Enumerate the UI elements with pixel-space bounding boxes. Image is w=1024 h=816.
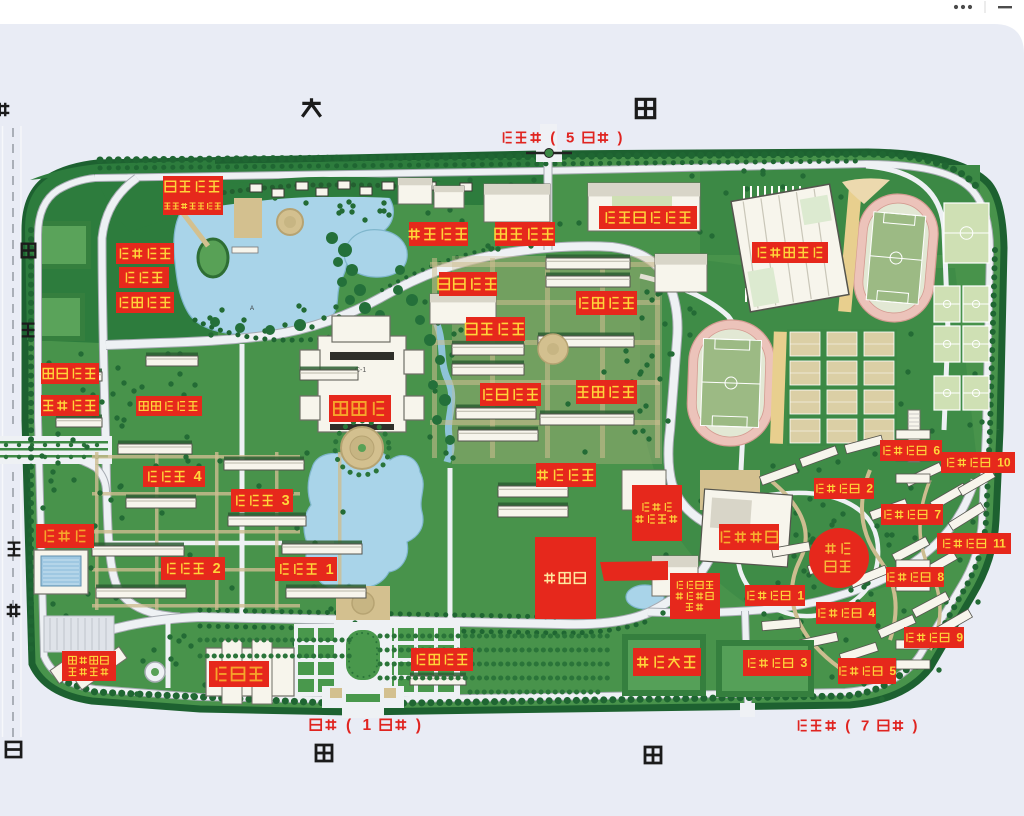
svg-text:1: 1 <box>797 589 804 603</box>
svg-text:): ) <box>913 718 918 734</box>
svg-text:6: 6 <box>933 444 940 458</box>
svg-text:7: 7 <box>934 508 941 522</box>
svg-text:1: 1 <box>363 717 372 734</box>
svg-text:A: A <box>250 306 254 312</box>
svg-text:10: 10 <box>997 456 1011 470</box>
svg-text:4: 4 <box>868 606 875 620</box>
svg-text:): ) <box>618 130 623 146</box>
svg-text:5: 5 <box>566 130 574 146</box>
svg-text:8: 8 <box>937 570 944 584</box>
svg-text:7: 7 <box>861 718 869 734</box>
svg-text:2: 2 <box>866 482 873 496</box>
svg-text:1: 1 <box>326 562 334 578</box>
svg-text:4: 4 <box>194 469 202 485</box>
svg-text:11: 11 <box>993 537 1006 551</box>
svg-text:3: 3 <box>800 656 807 670</box>
svg-text:): ) <box>416 717 421 734</box>
svg-text:9: 9 <box>956 631 963 645</box>
svg-text:5: 5 <box>889 664 896 678</box>
svg-text:3: 3 <box>282 493 290 509</box>
svg-text:(: ( <box>550 130 555 146</box>
svg-text:(: ( <box>346 717 352 734</box>
svg-text:2: 2 <box>213 561 221 577</box>
svg-text:(: ( <box>845 718 850 734</box>
